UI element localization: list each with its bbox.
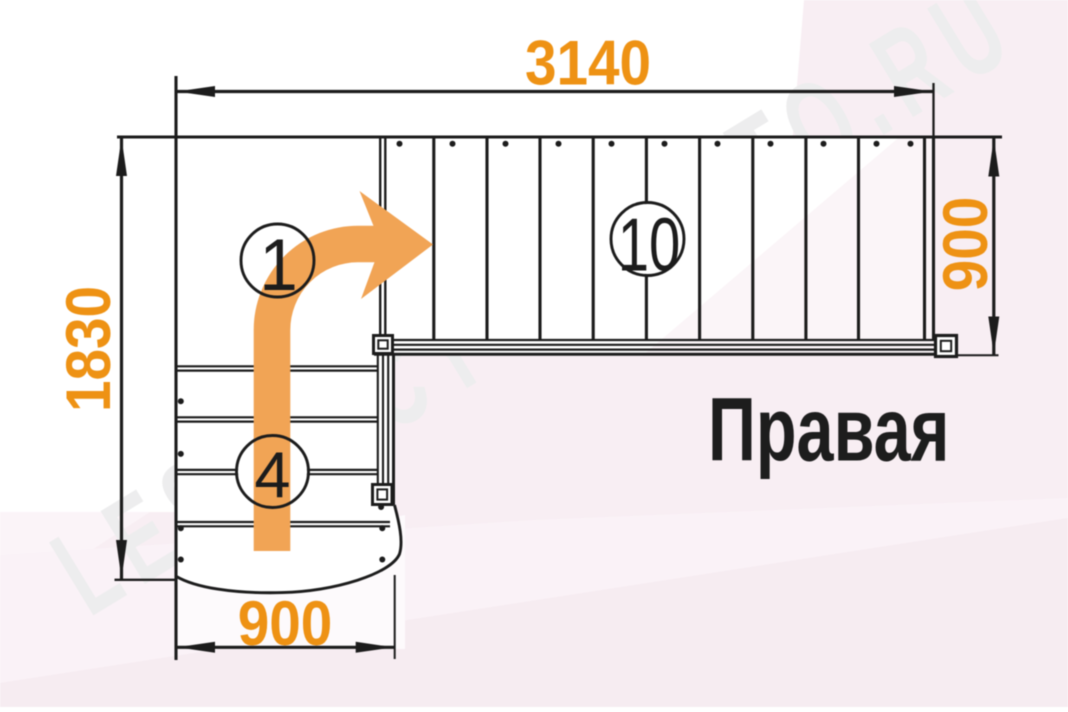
svg-text:3140: 3140 <box>525 28 651 98</box>
svg-text:900: 900 <box>238 588 333 658</box>
svg-text:900: 900 <box>930 197 1000 292</box>
svg-text:1830: 1830 <box>53 286 123 412</box>
svg-text:10: 10 <box>618 204 681 288</box>
svg-text:Правая: Правая <box>708 379 950 480</box>
svg-text:4: 4 <box>254 438 290 511</box>
svg-text:1: 1 <box>259 225 298 306</box>
